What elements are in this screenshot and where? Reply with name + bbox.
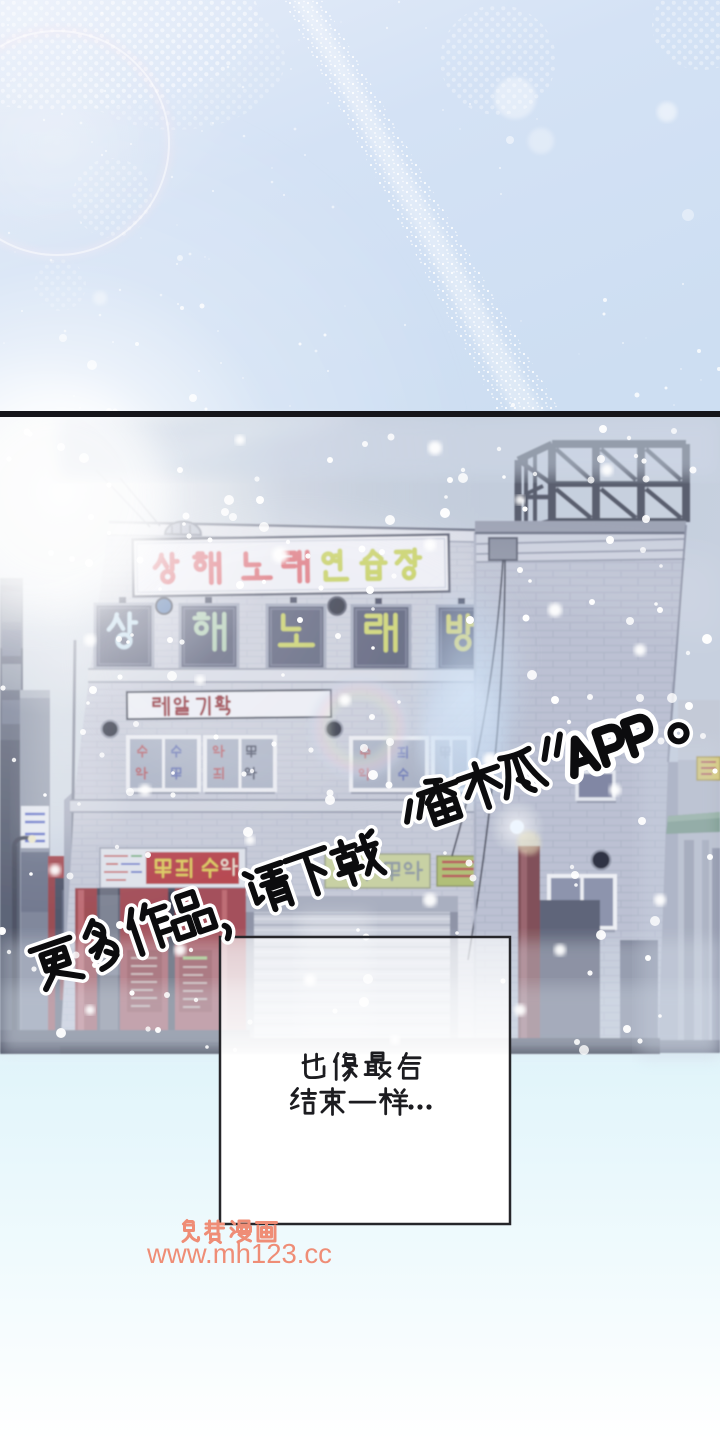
- svg-text:www.mh123.cc: www.mh123.cc: [146, 1238, 332, 1269]
